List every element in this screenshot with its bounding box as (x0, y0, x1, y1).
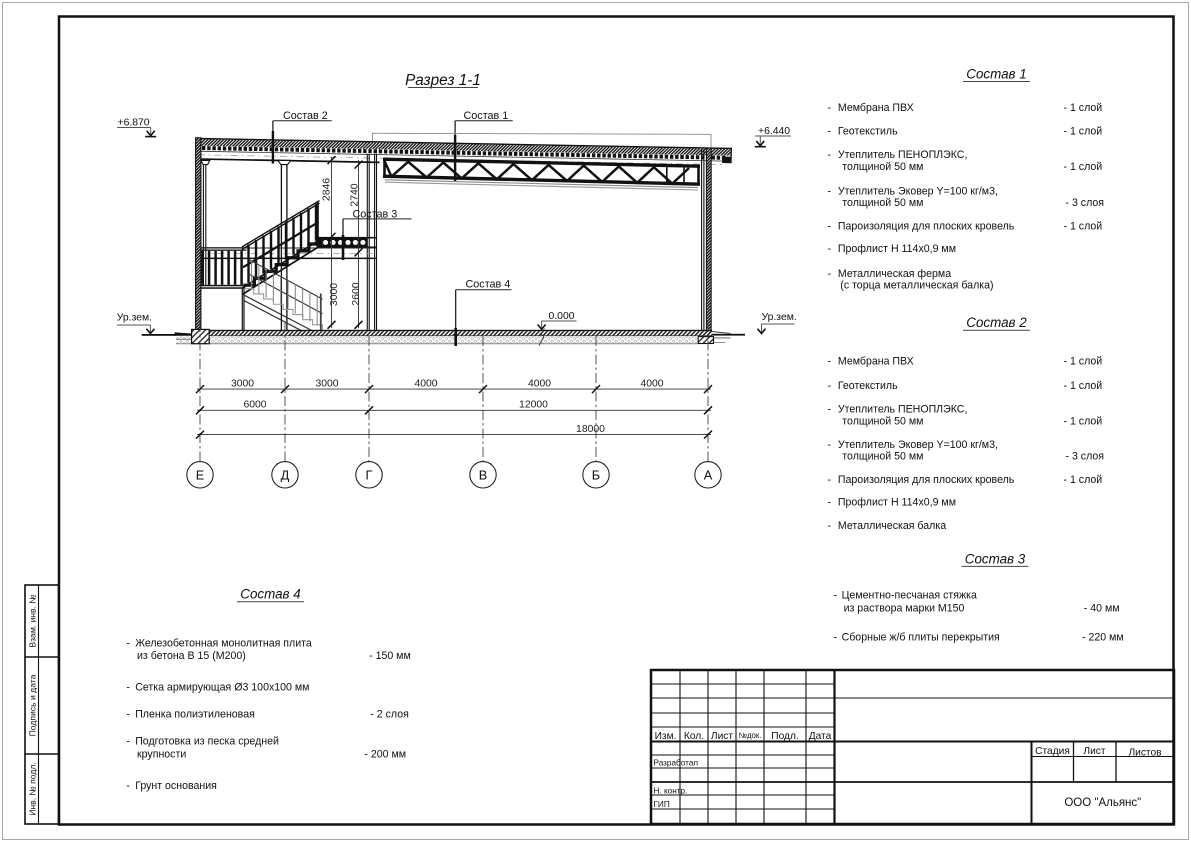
svg-text:4000: 4000 (528, 378, 551, 389)
svg-text:- 3 слоя: - 3 слоя (1066, 197, 1105, 209)
svg-text:Изм.: Изм. (655, 731, 677, 742)
svg-text:толщиной 50 мм: толщиной 50 мм (842, 197, 923, 209)
svg-text:Состав 1: Состав 1 (464, 110, 509, 122)
svg-text:Ур.зем.: Ур.зем. (762, 312, 797, 323)
svg-text:Цементно-песчаная стяжка: Цементно-песчаная стяжка (842, 589, 977, 601)
svg-text:-: - (828, 520, 832, 532)
svg-text:- 40 мм: - 40 мм (1084, 602, 1120, 614)
svg-text:Пароизоляция для плоских крове: Пароизоляция для плоских кровель (838, 221, 1015, 233)
svg-text:-: - (126, 736, 130, 748)
svg-text:Металлическая балка: Металлическая балка (838, 520, 946, 532)
svg-text:-: - (828, 102, 832, 114)
svg-text:-: - (828, 496, 832, 508)
svg-text:Кол.: Кол. (684, 731, 704, 742)
svg-text:-: - (828, 185, 832, 197)
svg-text:Подготовка из песка средней: Подготовка из песка средней (135, 736, 279, 748)
svg-text:- 1 слой: - 1 слой (1064, 415, 1103, 427)
svg-text:Состав 2: Состав 2 (966, 315, 1027, 330)
svg-text:Е: Е (196, 467, 205, 482)
svg-text:-: - (828, 404, 832, 416)
svg-text:-: - (126, 780, 130, 792)
svg-text:+6.440: +6.440 (758, 126, 790, 137)
svg-text:- 1 слой: - 1 слой (1064, 221, 1103, 233)
svg-text:- 1 слой: - 1 слой (1064, 355, 1103, 367)
svg-text:№док.: №док. (739, 731, 762, 740)
svg-text:12000: 12000 (519, 400, 548, 411)
svg-text:6000: 6000 (243, 400, 266, 411)
svg-text:-: - (828, 221, 832, 233)
svg-text:Металлическая ферма: Металлическая ферма (838, 268, 951, 280)
svg-text:-: - (828, 355, 832, 367)
svg-text:Утеплитель Эковер Y=100 кг/м3,: Утеплитель Эковер Y=100 кг/м3, (838, 439, 998, 451)
svg-text:Мембрана ПВХ: Мембрана ПВХ (838, 102, 914, 114)
svg-text:Грунт основания: Грунт основания (135, 780, 217, 792)
svg-text:Стадия: Стадия (1035, 746, 1070, 757)
svg-text:Подл.: Подл. (771, 731, 798, 742)
svg-text:Железобетонная монолитная пли: Железобетонная монолитная плита (135, 637, 312, 649)
svg-text:Состав 1: Состав 1 (966, 67, 1026, 82)
svg-text:3000: 3000 (315, 378, 338, 389)
svg-text:Пленка полиэтиленовая: Пленка полиэтиленовая (135, 708, 255, 720)
svg-text:- 1 слой: - 1 слой (1064, 474, 1103, 486)
svg-text:Профлист Н 114х0,9 мм: Профлист Н 114х0,9 мм (838, 496, 956, 508)
svg-text:4000: 4000 (640, 378, 663, 389)
svg-text:ГИП: ГИП (654, 800, 670, 809)
svg-text:Ур.зем.: Ур.зем. (117, 312, 152, 323)
svg-text:2846: 2846 (321, 178, 332, 201)
svg-text:-: - (126, 637, 130, 649)
svg-text:ООО "Альянс": ООО "Альянс" (1064, 797, 1141, 809)
svg-text:Состав 4: Состав 4 (466, 279, 511, 291)
svg-text:-: - (828, 149, 832, 161)
svg-text:Б: Б (592, 467, 600, 482)
svg-text:Инв. № подл.: Инв. № подл. (28, 762, 38, 816)
svg-text:-: - (828, 126, 832, 138)
svg-text:+6.870: +6.870 (118, 117, 150, 128)
svg-text:2740: 2740 (350, 183, 361, 206)
svg-text:Геотекстиль: Геотекстиль (838, 126, 898, 138)
svg-text:Пароизоляция для плоских крове: Пароизоляция для плоских кровель (838, 474, 1015, 486)
svg-text:-: - (834, 632, 838, 644)
svg-text:из бетона В 15 (М200): из бетона В 15 (М200) (137, 650, 246, 662)
svg-text:Сетка армирующая Ø3 100х100 мм: Сетка армирующая Ø3 100х100 мм (135, 681, 309, 693)
svg-text:-: - (828, 380, 832, 392)
svg-text:Взам. инв. №: Взам. инв. № (28, 594, 38, 647)
svg-text:Н. контр.: Н. контр. (654, 787, 688, 796)
svg-text:Г: Г (366, 467, 373, 482)
svg-text:- 220 мм: - 220 мм (1082, 632, 1124, 644)
svg-text:- 200 мм: - 200 мм (364, 748, 406, 760)
svg-text:18000: 18000 (576, 424, 605, 435)
svg-text:3000: 3000 (329, 283, 340, 306)
svg-text:толщиной 50 мм: толщиной 50 мм (842, 451, 923, 463)
svg-text:В: В (479, 467, 488, 482)
svg-text:2600: 2600 (351, 282, 362, 305)
svg-text:толщиной 50 мм: толщиной 50 мм (842, 161, 923, 173)
svg-text:-: - (828, 474, 832, 486)
svg-text:Листов: Листов (1128, 748, 1161, 759)
svg-text:Д: Д (281, 467, 290, 482)
svg-text:Утеплитель ПЕНОПЛЭКС,: Утеплитель ПЕНОПЛЭКС, (838, 404, 968, 416)
svg-text:Сборные ж/б плиты перекрытия: Сборные ж/б плиты перекрытия (842, 632, 1000, 644)
svg-text:0.000: 0.000 (549, 311, 575, 322)
svg-text:- 1 слой: - 1 слой (1064, 102, 1103, 114)
svg-text:Состав 4: Состав 4 (240, 587, 300, 602)
svg-text:А: А (704, 467, 713, 482)
svg-text:толщиной 50 мм: толщиной 50 мм (842, 415, 923, 427)
svg-text:крупности: крупности (137, 748, 186, 760)
svg-text:Разработал: Разработал (654, 759, 699, 768)
svg-text:Разрез 1-1: Разрез 1-1 (405, 72, 481, 89)
svg-text:(с торца металлическая балка): (с торца металлическая балка) (840, 280, 993, 292)
svg-text:- 3 слоя: - 3 слоя (1066, 451, 1105, 463)
svg-text:-: - (828, 243, 832, 255)
svg-text:-: - (126, 708, 130, 720)
svg-text:Мембрана ПВХ: Мембрана ПВХ (838, 355, 914, 367)
svg-text:из раствора марки М150: из раствора марки М150 (844, 602, 965, 614)
svg-text:3000: 3000 (231, 378, 254, 389)
svg-text:- 1 слой: - 1 слой (1064, 380, 1103, 392)
svg-text:-: - (834, 589, 838, 601)
svg-text:- 2 слоя: - 2 слоя (370, 708, 409, 720)
svg-text:Подпись и дата: Подпись и дата (28, 674, 38, 736)
svg-text:Дата: Дата (809, 731, 832, 742)
svg-text:-: - (828, 439, 832, 451)
svg-text:Лист: Лист (1083, 746, 1105, 757)
svg-text:Лист: Лист (711, 731, 733, 742)
svg-text:4000: 4000 (414, 378, 437, 389)
svg-text:Состав 3: Состав 3 (965, 551, 1026, 566)
svg-text:Состав 2: Состав 2 (283, 110, 328, 122)
svg-text:Геотекстиль: Геотекстиль (838, 380, 898, 392)
svg-text:- 1 слой: - 1 слой (1064, 126, 1103, 138)
svg-text:Утеплитель Эковер Y=100 кг/м3,: Утеплитель Эковер Y=100 кг/м3, (838, 185, 998, 197)
svg-text:- 1 слой: - 1 слой (1064, 161, 1103, 173)
svg-text:Утеплитель ПЕНОПЛЭКС,: Утеплитель ПЕНОПЛЭКС, (838, 149, 968, 161)
svg-text:- 150 мм: - 150 мм (369, 650, 411, 662)
svg-text:-: - (126, 681, 130, 693)
svg-text:Профлист Н 114х0,9 мм: Профлист Н 114х0,9 мм (838, 243, 956, 255)
svg-text:-: - (828, 268, 832, 280)
